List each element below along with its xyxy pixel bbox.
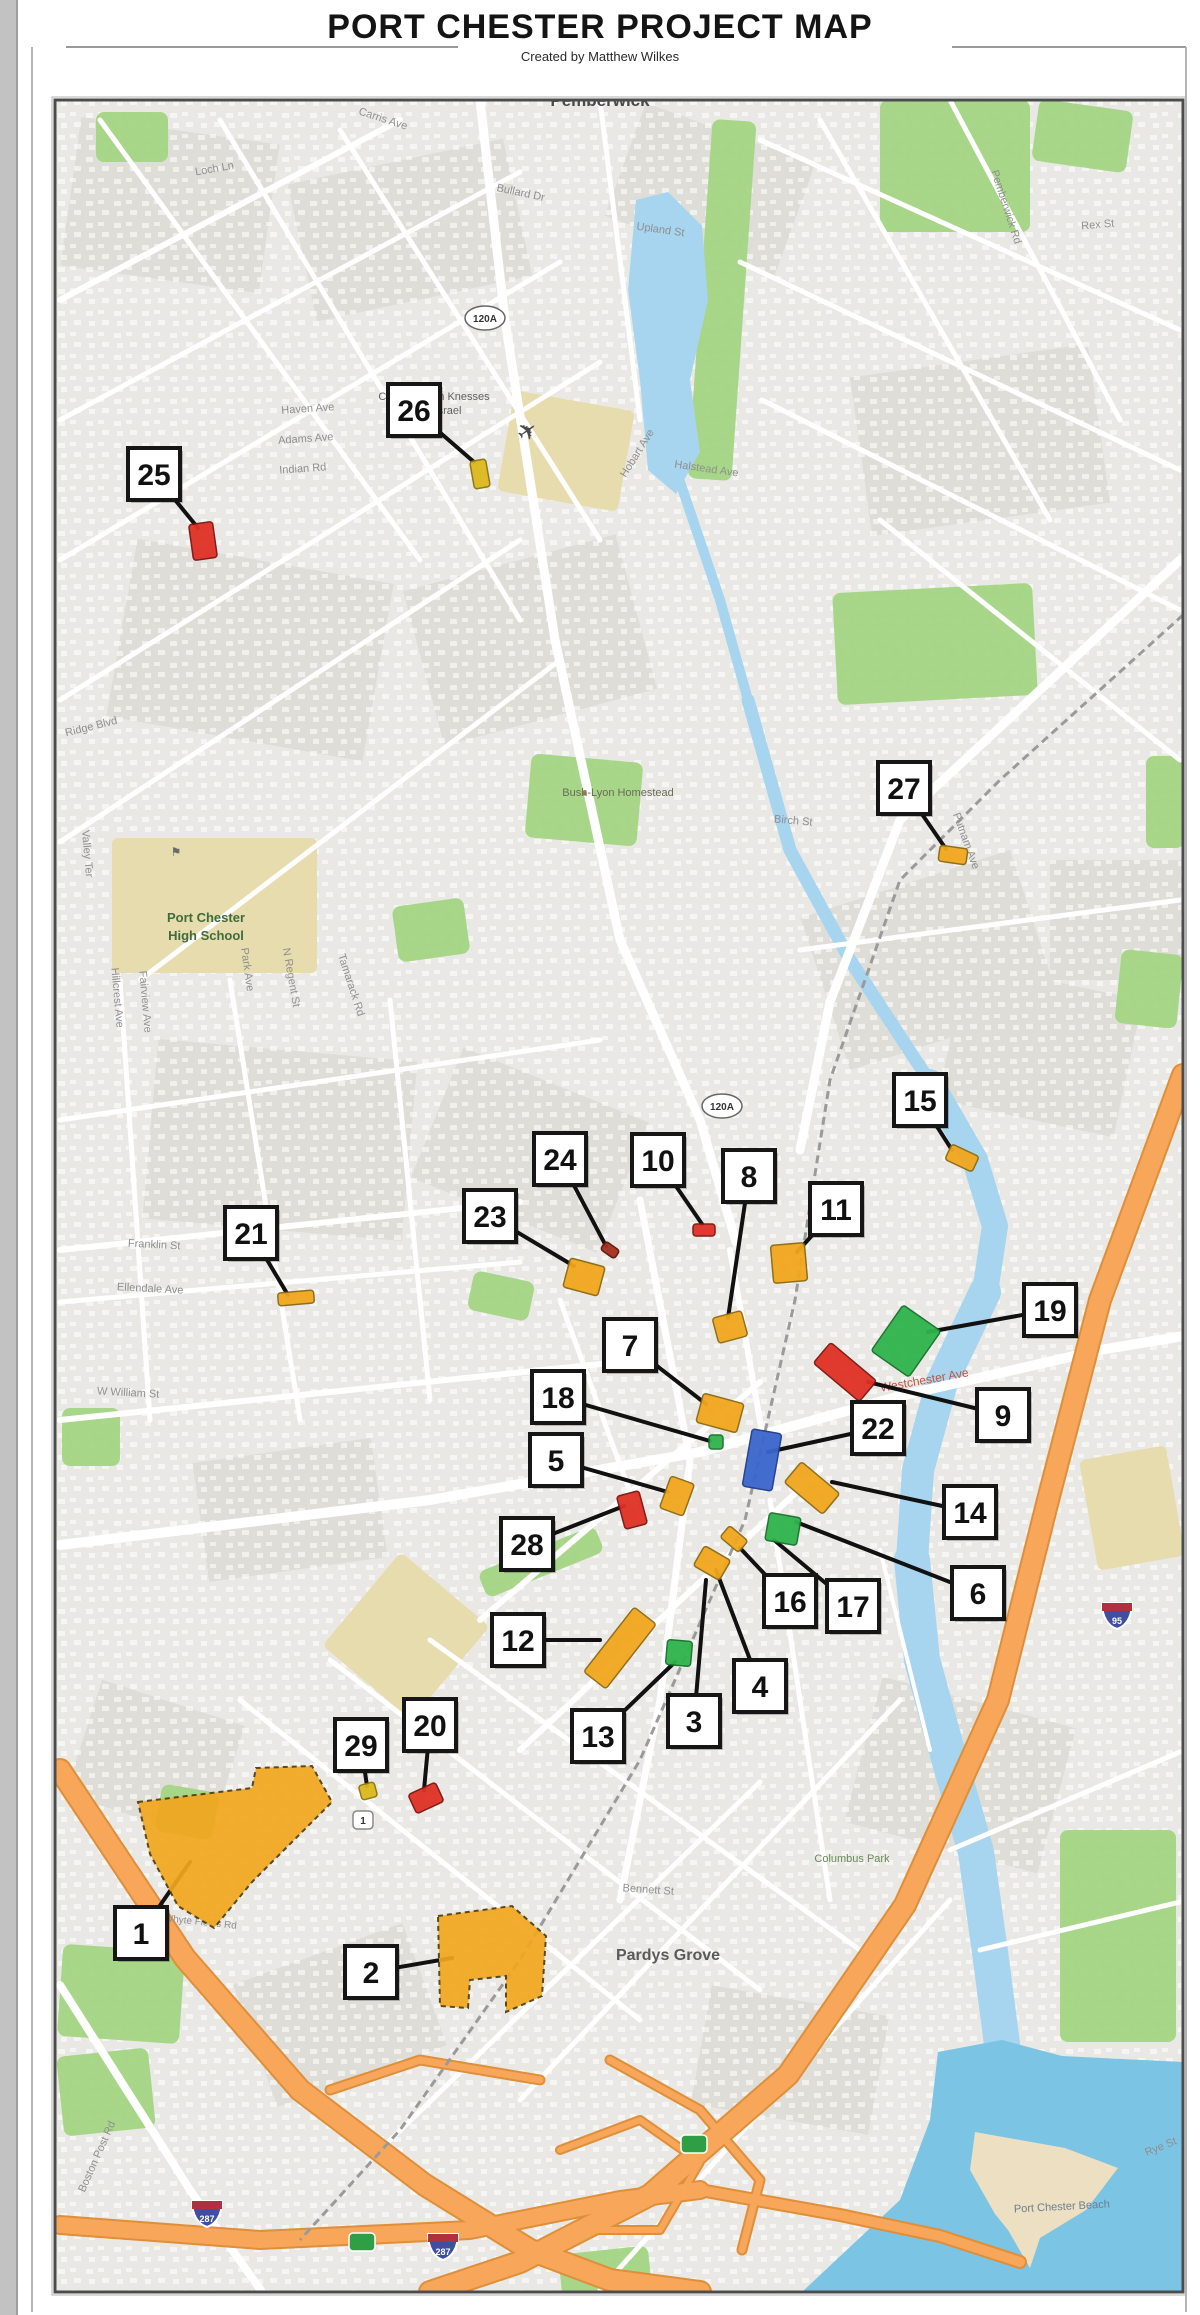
flag-icon: ⚑ [171,845,182,859]
us1-shield-text: 1 [360,1816,366,1827]
park-area [96,112,168,162]
project-parcel-10 [693,1224,715,1236]
label-number-5: 5 [548,1445,565,1478]
label-number-2: 2 [363,1957,380,1990]
label-number-15: 15 [903,1085,936,1118]
label-number-6: 6 [970,1578,987,1611]
label-number-17: 17 [836,1591,869,1624]
street-label: High School [168,928,244,943]
interstate-shield-text: 95 [1112,1616,1122,1626]
screenshot-stage: PORT CHESTER PROJECT MAP Created by Matt… [0,0,1200,2315]
label-number-20: 20 [413,1710,446,1743]
homestead-icon: ■ [581,788,586,798]
park-area [391,897,470,962]
route-shield-120A-text: 120A [473,314,497,325]
interstate-shield-text: 287 [435,2247,450,2257]
project-parcel-25 [189,522,218,561]
label-number-10: 10 [641,1145,674,1178]
label-number-13: 13 [581,1721,614,1754]
street-label: Pardys Grove [616,1947,720,1964]
project-parcel-27 [938,845,968,865]
label-number-14: 14 [953,1497,987,1530]
project-parcel-21 [278,1290,315,1306]
label-number-11: 11 [820,1194,852,1227]
street-label: Columbus Park [814,1853,890,1865]
label-number-18: 18 [541,1382,574,1415]
interstate-shield-text: 287 [199,2214,214,2224]
label-number-4: 4 [752,1671,769,1704]
park-area [1146,756,1184,848]
label-number-1: 1 [133,1918,150,1951]
label-number-28: 28 [510,1529,543,1562]
label-number-7: 7 [622,1330,639,1363]
street-label: Bush-Lyon Homestead [562,787,674,799]
street-label: Port Chester [167,910,245,925]
project-parcel-29 [358,1782,377,1801]
label-number-26: 26 [397,395,430,428]
label-number-27: 27 [887,773,920,806]
label-number-3: 3 [686,1706,703,1739]
park-area [1114,949,1183,1029]
label-number-9: 9 [995,1400,1012,1433]
label-number-21: 21 [234,1218,267,1251]
label-number-22: 22 [861,1413,894,1446]
project-parcel-18 [709,1435,723,1449]
interstate-shield-band [1102,1603,1132,1611]
interstate-shield-band [428,2234,458,2242]
label-number-24: 24 [543,1144,577,1177]
state-route-shield [681,2135,707,2153]
park-area [1060,1830,1176,2042]
label-number-8: 8 [741,1161,758,1194]
label-number-23: 23 [473,1201,506,1234]
map-content: PemberwickLoch LnCarris AveBullard DrUpl… [55,91,1190,2297]
label-number-12: 12 [501,1625,534,1658]
park-area [832,583,1038,705]
project-parcel-17 [765,1512,801,1545]
map-canvas: PemberwickLoch LnCarris AveBullard DrUpl… [0,0,1200,2315]
park-area [1031,99,1134,174]
label-number-19: 19 [1033,1295,1066,1328]
label-number-16: 16 [773,1586,806,1619]
state-route-shield [349,2233,375,2251]
interstate-shield-band [192,2201,222,2209]
route-shield-120A-text: 120A [710,1102,734,1113]
label-number-29: 29 [344,1730,377,1763]
project-parcel-11 [770,1243,807,1284]
label-number-25: 25 [137,459,170,492]
project-parcel-13 [665,1639,692,1666]
